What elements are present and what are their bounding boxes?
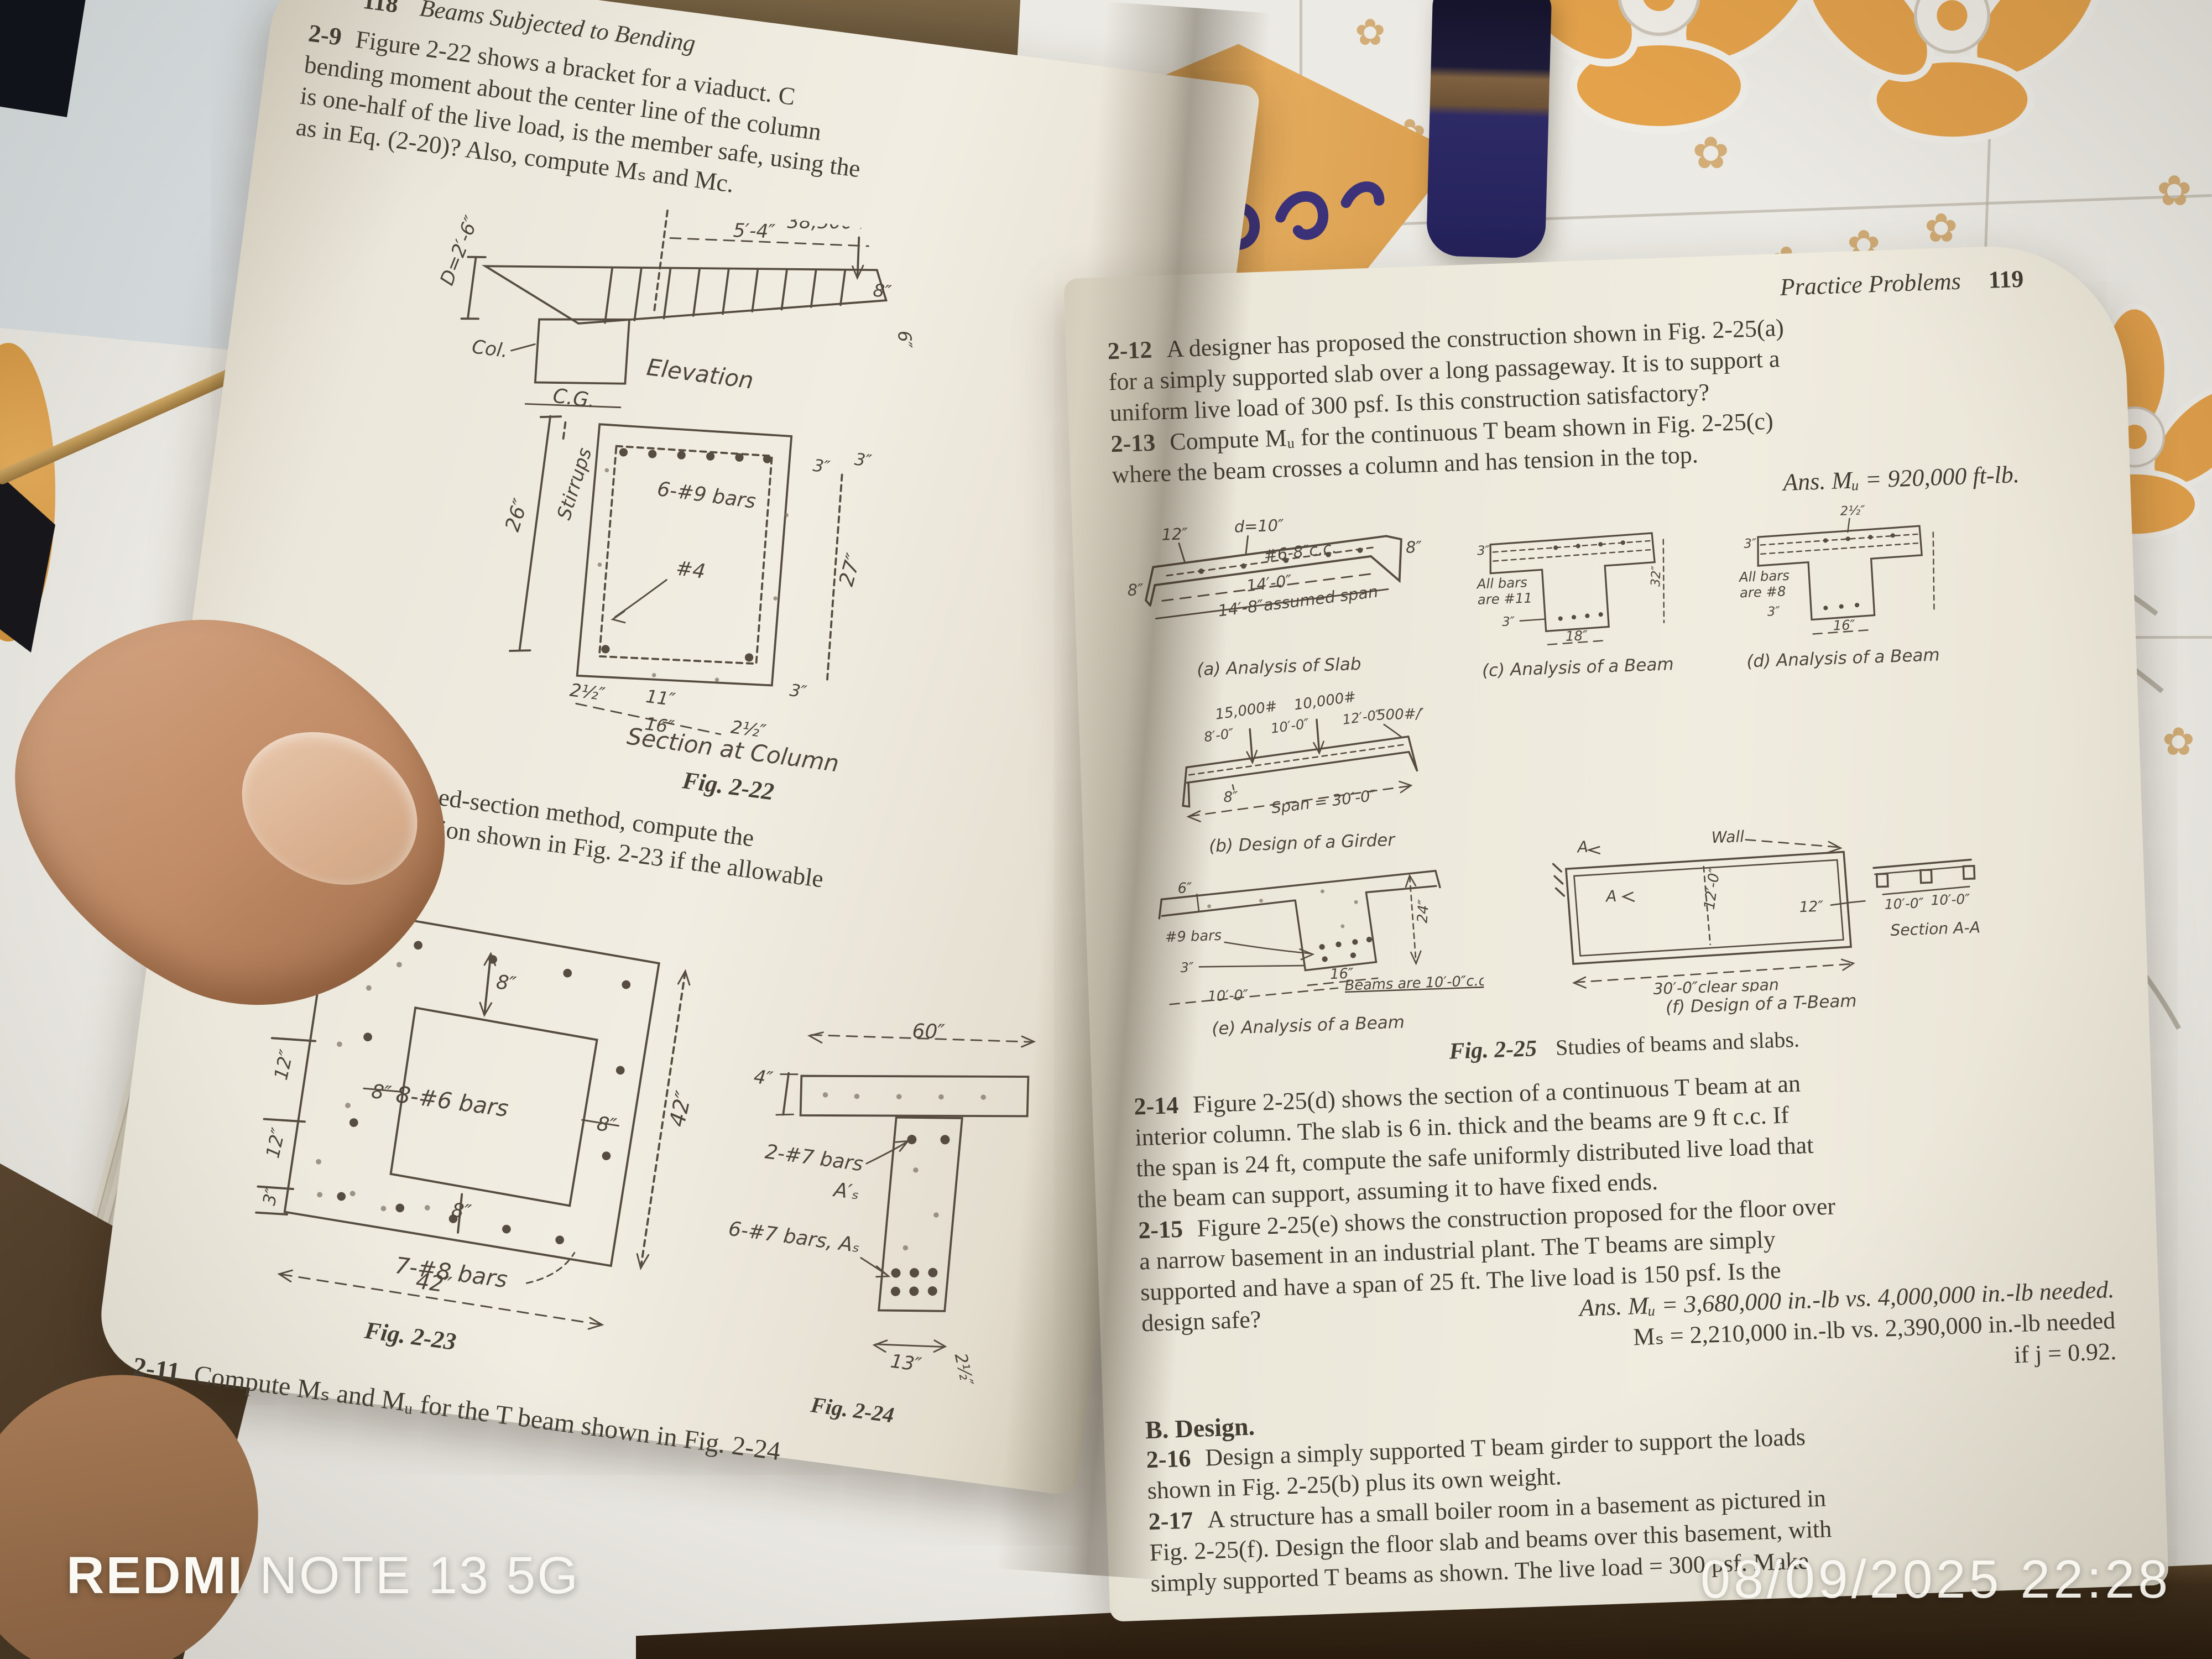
figure-2-24: 4″ 60″ 2-#7 bars A′ₛ 6-#7 bars, Aₛ 13″ 2… [692, 989, 1064, 1443]
fig-2-25e-drawing: 6″ #9 bars 3″ 24″ 16″ 10′-0″ Beams ar [1125, 841, 1485, 1019]
problem-number: 2-16 [1146, 1444, 1191, 1473]
figure-2-22: D=2′-6″ Col. 5′-4″ 38,500 lb. 8″ 6″ Elev… [332, 169, 1198, 852]
problem-number: 2-17 [1148, 1506, 1193, 1535]
small-flower-icon: ✿ [1692, 127, 1729, 179]
dim-label: 6″ [894, 330, 916, 349]
small-flower-icon: ✿ [1924, 205, 1958, 251]
dim-label: 8″ [1223, 789, 1239, 806]
dim-label: 27″ [834, 551, 865, 589]
section-view: C.G. 6-#9 bars #4 Stirrups [476, 379, 883, 759]
dim-label: d=10″ [1234, 515, 1284, 536]
fig-2-25f-drawing: A Wall A 12′-0″ 12″ 30′-0″clear span [1501, 817, 2015, 1000]
small-flower-icon: ✿ [1355, 11, 1385, 54]
fig-2-25d-drawing: 2½″ 3″ All bars are #8 3″ 16″ [1710, 498, 1970, 650]
bars-label: 6-#7 bars, Aₛ [727, 1218, 862, 1258]
dim-label: 12′-0″ [1342, 707, 1382, 728]
dim-label: 13″ [889, 1350, 923, 1376]
dim-label: 12″ [1799, 898, 1824, 916]
small-flower-icon: ✿ [2157, 166, 2192, 215]
dim-label: 3″ [812, 456, 832, 478]
timestamp-watermark: 08/09/2025 22:28 [1700, 1548, 2171, 1610]
load-label: 10,000# [1293, 688, 1357, 713]
bars-label: A′ₛ [831, 1178, 860, 1204]
dim-label: 2½″ [1840, 503, 1865, 519]
dim-label: Beams are 10′-0″c.c. [1344, 972, 1484, 994]
dim-label: 4″ [753, 1066, 775, 1090]
dim-label: 2½″ [951, 1352, 977, 1389]
figure-2-22-drawing: D=2′-6″ Col. 5′-4″ 38,500 lb. 8″ 6″ Elev… [340, 169, 1039, 773]
fig-2-25c: 3″ All bars are #11 3″ 18″ 32″ (c) Analy… [1451, 507, 1700, 682]
dim-label: 12′-0″ [1701, 867, 1724, 911]
right-page: Practice Problems 119 2-12A designer has… [1063, 242, 2169, 1621]
bars-label: All bars [1738, 567, 1790, 585]
dim-label: 3″ [1477, 544, 1490, 559]
dim-label: 12″ [270, 1047, 298, 1082]
problem-text: design safe? [1141, 1304, 1261, 1339]
watermark-model: NOTE 13 5G [259, 1546, 580, 1605]
dim-label: 14′-0″ [1245, 571, 1293, 596]
wall-label: Wall [1711, 827, 1745, 847]
fig-2-25d: 2½″ 3″ All bars are #8 3″ 16″ [1710, 498, 1970, 673]
dim-label: 8″ [370, 1080, 393, 1105]
load-label: 15,000# [1214, 698, 1279, 723]
problem-number: 2-9 [307, 19, 343, 50]
bars-label: 6-#9 bars [656, 477, 757, 513]
dim-label: D=2′-6″ [436, 213, 483, 289]
problem-number: 2-13 [1110, 429, 1156, 458]
bars-label: are #8 [1739, 583, 1786, 601]
section-cut-label: A [1605, 887, 1617, 906]
fig-2-25e: 6″ #9 bars 3″ 24″ 16″ 10′-0″ Beams ar [1125, 841, 1486, 1042]
stirrups-label: Stirrups [553, 445, 596, 523]
dim-label: 8″ [495, 971, 518, 995]
section-cut-label: A [1576, 838, 1588, 857]
fig-2-25c-drawing: 3″ All bars are #11 3″ 18″ 32″ [1451, 507, 1699, 659]
bars-label: 2-#7 bars [764, 1140, 864, 1176]
load-label: 500#/′ [1376, 706, 1425, 724]
dim-label: 3″ [853, 450, 873, 471]
figure-2-25: 12″ d=10″ #6-8″c.c. 8″ 8″ 14′-0″ 14′-8″a… [1114, 487, 2117, 1080]
problem-2-15: 2-15Figure 2-25(e) shows the constructio… [1138, 1181, 2128, 1401]
left-page-number: 118 [361, 0, 400, 19]
dim-label: 8″ [1127, 580, 1144, 599]
dim-label: 8″ [1405, 538, 1422, 557]
fig-2-25b-drawing: 15,000# 10,000# 500#/′ 8′-0″ 10′-0″ 12′-… [1136, 681, 1462, 836]
photo-scene: ✿ ✿ ✿ ✿ ✿ ✿ ✿ ✿ ✿ ✿ [0, 0, 2212, 1659]
dim-label: Col. [471, 336, 509, 362]
dim-label: 2½″ [568, 679, 606, 705]
right-page-number: 119 [1988, 265, 2024, 294]
problem-number: 2-12 [1107, 336, 1152, 365]
dim-label: 18″ [1565, 627, 1588, 644]
fig-2-25a: 12″ d=10″ #6-8″c.c. 8″ 8″ 14′-0″ 14′-8″a… [1114, 510, 1440, 682]
dim-label: 10′-0″ [1884, 895, 1924, 912]
tie-label: #4 [675, 556, 707, 583]
bars-label: #9 bars [1165, 927, 1222, 946]
fig-2-25a-drawing: 12″ d=10″ #6-8″c.c. 8″ 8″ 14′-0″ 14′-8″a… [1114, 510, 1439, 660]
dim-label: 14′-8″assumed span [1217, 582, 1379, 620]
section-label: Section A-A [1890, 918, 1981, 940]
watermark-brand: REDMI [66, 1546, 244, 1605]
dim-label: 3″ [1767, 604, 1780, 619]
dim-label: 42″ [665, 1089, 697, 1129]
bars-label: All bars [1475, 574, 1527, 592]
view-label: Elevation [645, 353, 755, 394]
dim-label: 3″ [1502, 614, 1515, 629]
dim-label: 3″ [789, 681, 808, 702]
dim-label: 11″ [645, 686, 677, 711]
dim-label: 3″ [1180, 959, 1194, 975]
dim-label: 12″ [1161, 524, 1188, 544]
dim-label: 60″ [912, 1020, 946, 1044]
dim-label: 10′-0″ [1931, 891, 1971, 908]
dim-label: 3″ [1744, 536, 1757, 551]
dim-label: 12″ [262, 1125, 289, 1160]
bars-label: are #11 [1477, 589, 1532, 607]
fig-2-25f: A Wall A 12′-0″ 12″ 30′-0″clear span [1501, 817, 2016, 1023]
problem-number: 2-15 [1138, 1215, 1183, 1244]
cg-label: C.G. [551, 384, 596, 413]
dim-label: 6″ [1177, 880, 1192, 897]
dim-label: 10′-0″ [1207, 987, 1249, 1005]
camera-watermark: REDMINOTE 13 5G [66, 1546, 580, 1606]
dim-label: 8″ [872, 279, 893, 302]
dim-label: Span = 30′-0″ [1270, 786, 1377, 817]
right-running-title: Practice Problems [1780, 267, 1961, 301]
bars-label: 8-#6 bars [394, 1081, 510, 1122]
dim-label: 24″ [1414, 899, 1432, 924]
figure-2-24-drawing: 4″ 60″ 2-#7 bars A′ₛ 6-#7 bars, Aₛ 13″ 2… [696, 989, 1064, 1415]
dim-label: 8′-0″ [1203, 725, 1235, 745]
problem-number: 2-14 [1134, 1092, 1179, 1120]
dim-label: 32″ [1648, 565, 1664, 587]
fig-2-25b: 15,000# 10,000# 500#/′ 8′-0″ 10′-0″ 12′-… [1136, 681, 1462, 859]
dim-label: 10′-0″ [1270, 715, 1310, 736]
dim-label: 5′-4″ [733, 220, 776, 243]
dim-label: 16″ [1833, 617, 1855, 633]
dim-label: 26″ [500, 495, 533, 534]
marker-pen [1426, 0, 1552, 259]
dim-label: 42″ [414, 1269, 453, 1298]
tile-flower-icon [1759, 0, 2146, 210]
